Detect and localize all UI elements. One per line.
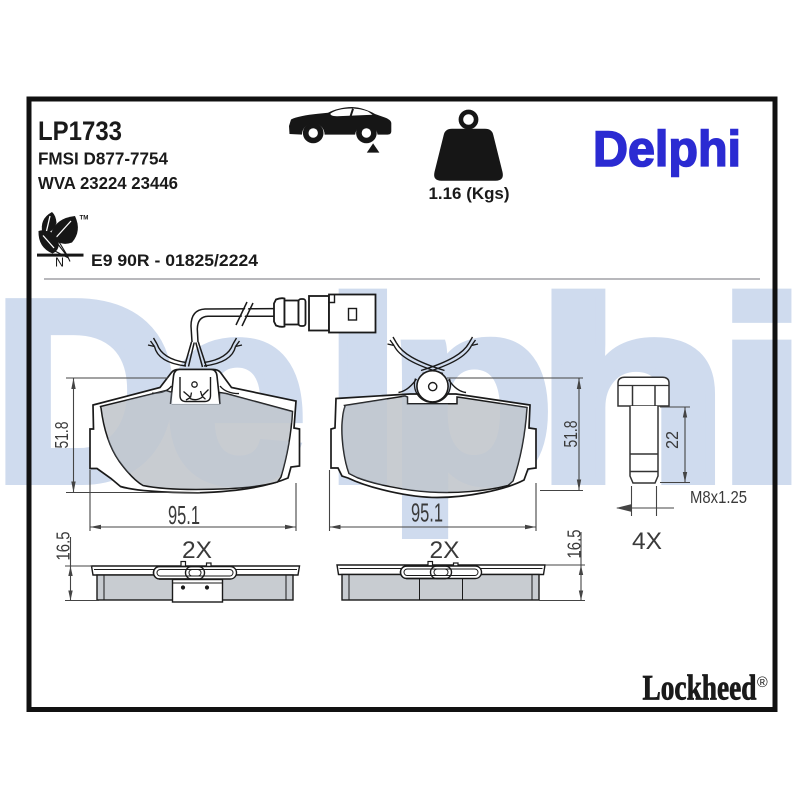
svg-text:2X: 2X (182, 537, 212, 564)
svg-text:WVA 23224 23446: WVA 23224 23446 (38, 173, 178, 193)
svg-text:95.1: 95.1 (168, 500, 200, 530)
svg-text:E9 90R - 01825/2224: E9 90R - 01825/2224 (91, 251, 259, 270)
svg-text:Lockheed: Lockheed (643, 668, 757, 708)
svg-text:Delphi: Delphi (593, 121, 741, 177)
svg-text:2X: 2X (430, 537, 460, 564)
svg-text:N: N (55, 256, 64, 270)
svg-text:®: ® (757, 675, 768, 691)
svg-text:16.5: 16.5 (54, 532, 74, 561)
svg-text:LP1733: LP1733 (38, 116, 122, 146)
svg-text:51.8: 51.8 (52, 422, 72, 449)
svg-text:FMSI D877-7754: FMSI D877-7754 (38, 149, 168, 169)
svg-text:TM: TM (80, 215, 89, 222)
svg-text:51.8: 51.8 (561, 421, 581, 448)
svg-text:22: 22 (662, 431, 682, 449)
svg-text:1.16 (Kgs): 1.16 (Kgs) (429, 185, 510, 203)
svg-text:95.1: 95.1 (411, 498, 443, 528)
svg-text:16.5: 16.5 (565, 530, 585, 559)
svg-text:4X: 4X (632, 528, 662, 555)
svg-text:M8x1.25: M8x1.25 (690, 487, 747, 507)
